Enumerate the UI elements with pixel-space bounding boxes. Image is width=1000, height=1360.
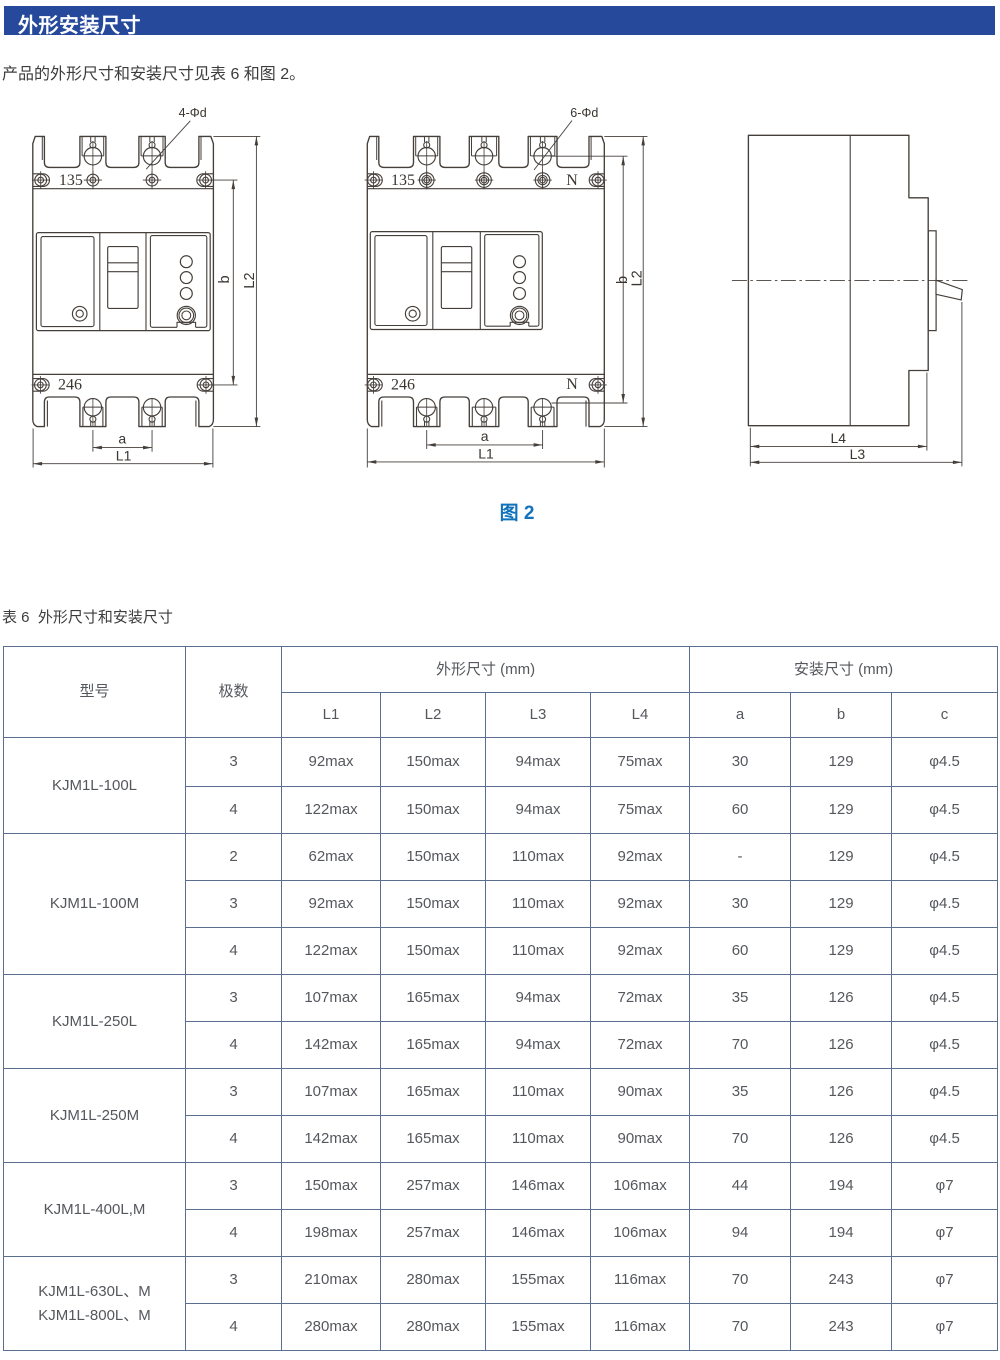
svg-text:246: 246 <box>58 377 82 394</box>
svg-text:135: 135 <box>59 172 83 189</box>
svg-text:L2: L2 <box>630 270 646 286</box>
svg-text:N: N <box>566 376 578 393</box>
svg-text:L4: L4 <box>831 430 847 446</box>
svg-text:b: b <box>217 275 233 283</box>
svg-text:L1: L1 <box>478 446 494 462</box>
svg-text:6-Φd: 6-Φd <box>570 106 598 120</box>
svg-text:246: 246 <box>391 377 415 394</box>
svg-text:a: a <box>118 431 126 447</box>
svg-text:135: 135 <box>391 172 415 189</box>
svg-text:L1: L1 <box>116 447 132 463</box>
svg-text:N: N <box>566 172 578 189</box>
svg-text:a: a <box>481 428 489 444</box>
svg-text:4-Φd: 4-Φd <box>179 106 207 120</box>
svg-text:L3: L3 <box>850 446 866 462</box>
svg-text:L2: L2 <box>242 272 258 288</box>
